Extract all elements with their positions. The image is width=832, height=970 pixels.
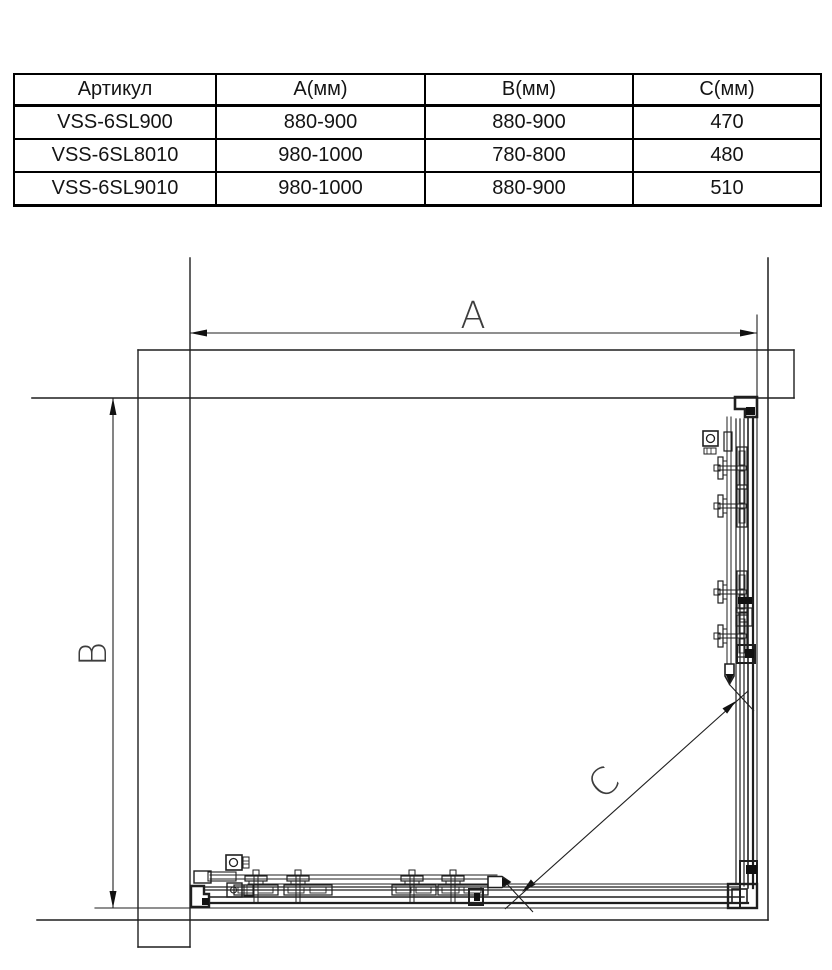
handle-knob-icon xyxy=(226,855,249,870)
corner-bracket-block xyxy=(746,865,757,874)
right-door-assembly xyxy=(703,397,757,908)
end-bracket-block xyxy=(745,649,754,658)
corner-bracket-block xyxy=(202,898,209,905)
door-edge-tick-right xyxy=(729,684,754,711)
page: { "table": { "headers": ["Артикул", "А(м… xyxy=(0,0,832,970)
corner-bracket-top-block xyxy=(746,407,755,415)
technical-drawing: A B C xyxy=(0,0,832,970)
arrow-right-icon xyxy=(740,330,757,337)
end-bracket-block xyxy=(474,893,480,901)
dimension-c: C xyxy=(505,684,754,912)
dimension-a: A xyxy=(190,294,757,337)
bottom-door-assembly xyxy=(190,855,757,908)
arrow-up-icon xyxy=(110,398,117,415)
dim-b-label: B xyxy=(72,642,115,666)
handle-knob-icon xyxy=(703,431,732,454)
walls-and-outline xyxy=(32,258,794,947)
dim-c-label: C xyxy=(580,758,628,807)
clamp-bar xyxy=(738,597,752,604)
rail-end-cap xyxy=(208,872,236,881)
arrow-down-icon xyxy=(110,891,117,908)
dimension-b: B xyxy=(72,398,117,908)
arrow-left-icon xyxy=(190,330,207,337)
dim-a-label: A xyxy=(460,294,485,337)
